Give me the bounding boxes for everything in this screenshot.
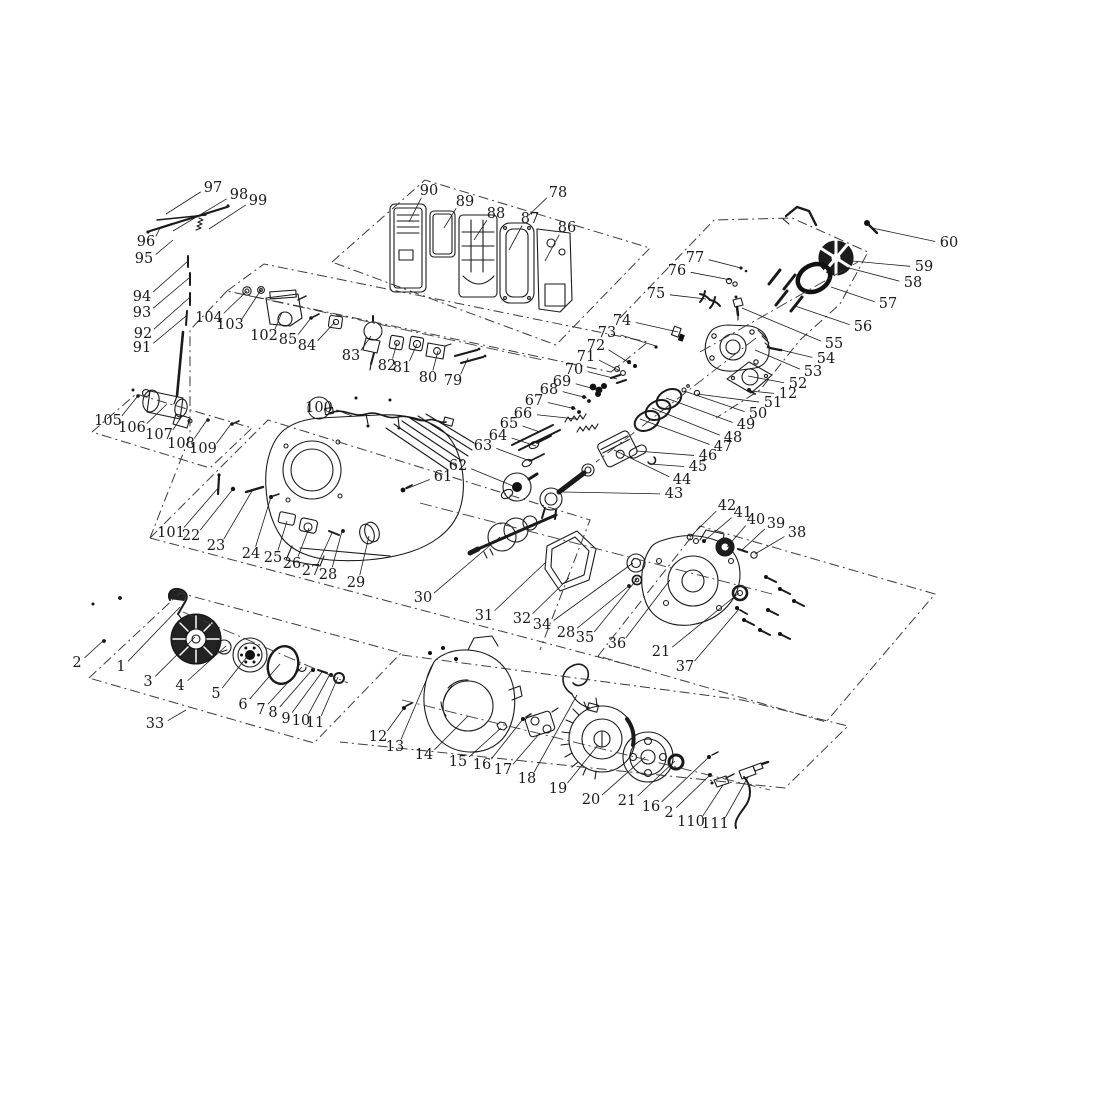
callout-leader: [849, 268, 899, 281]
callout-leader: [474, 220, 487, 240]
part-number-92: 92: [134, 326, 152, 342]
part-number-59: 59: [915, 259, 933, 275]
part-number-88: 88: [487, 206, 505, 222]
callout-leader: [298, 318, 311, 334]
part-number-90: 90: [420, 183, 438, 199]
part-number-17: 17: [494, 762, 512, 778]
callout-leader: [676, 775, 710, 808]
part-number-38: 38: [788, 525, 806, 541]
cover-group-boundary: [598, 526, 935, 722]
callout-leader: [567, 745, 598, 783]
part-number-1: 1: [116, 659, 125, 675]
callout-leader: [153, 261, 188, 292]
callout-leader: [554, 563, 633, 620]
part-number-74: 74: [613, 313, 631, 329]
callout-leader: [308, 674, 330, 714]
part-number-7: 7: [256, 702, 265, 718]
part-number-21: 21: [652, 644, 670, 660]
part-number-15: 15: [449, 754, 467, 770]
part-number-13: 13: [386, 739, 404, 755]
callout-leader: [563, 492, 660, 494]
part-number-6: 6: [238, 697, 247, 713]
part-number-32: 32: [513, 611, 531, 627]
part-number-39: 39: [767, 516, 785, 532]
callout-leader: [742, 308, 821, 341]
part-number-11: 11: [306, 715, 324, 731]
callout-leader: [168, 710, 186, 721]
callout-leader: [626, 580, 670, 638]
engine-exploded-diagram: 1234567891011121314151617181920211621101…: [0, 0, 1119, 1119]
callout-leader: [491, 719, 523, 759]
cylinder-head-assembly: [682, 207, 877, 396]
callout-leader: [666, 398, 733, 422]
callout-leader: [209, 205, 246, 229]
part-number-3: 3: [143, 674, 152, 690]
part-number-106: 106: [118, 420, 146, 436]
callout-leader: [852, 261, 910, 266]
part-number-33: 33: [146, 716, 164, 732]
callout-leader: [513, 733, 540, 764]
part-number-18: 18: [518, 771, 536, 787]
part-number-4: 4: [175, 678, 184, 694]
callout-leader: [224, 291, 247, 313]
part-number-94: 94: [133, 289, 151, 305]
callout-leader: [742, 529, 765, 550]
callout-leader: [224, 491, 252, 539]
callout-leader: [831, 287, 875, 302]
callout-leader: [495, 562, 546, 611]
callout-leader: [222, 653, 250, 688]
part-number-21: 21: [618, 793, 636, 809]
callout-leader: [278, 521, 287, 551]
part-number-96: 96: [137, 234, 155, 250]
part-number-35: 35: [576, 630, 594, 646]
part-number-5: 5: [211, 686, 220, 702]
part-number-19: 19: [549, 781, 567, 797]
callout-leader: [409, 198, 421, 222]
part-number-55: 55: [825, 336, 843, 352]
part-number-87: 87: [521, 211, 539, 227]
callout-leader: [434, 537, 500, 593]
callout-leader: [697, 394, 759, 402]
part-number-98: 98: [230, 187, 248, 203]
part-number-25: 25: [264, 550, 282, 566]
part-number-99: 99: [249, 193, 267, 209]
part-number-111: 111: [701, 816, 729, 832]
part-number-100: 100: [305, 400, 333, 416]
callout-leader: [548, 402, 576, 409]
callout-leader: [387, 708, 404, 731]
callout-leader: [166, 192, 201, 214]
part-number-16: 16: [473, 757, 491, 773]
part-number-23: 23: [207, 538, 225, 554]
flywheel-group-boundary: [340, 655, 848, 788]
callout-leader: [533, 578, 569, 614]
callout-leader: [409, 344, 417, 361]
part-number-76: 76: [668, 263, 686, 279]
part-number-86: 86: [558, 220, 576, 236]
callout-leader: [318, 322, 335, 341]
air-cleaner-group-boundary: [332, 180, 650, 345]
callout-leader: [332, 531, 342, 567]
callout-leader: [614, 450, 669, 477]
callout-leader: [695, 609, 739, 661]
air-cleaner-assembly: [390, 204, 572, 312]
callout-leader: [652, 408, 720, 435]
callout-leader: [496, 448, 530, 461]
part-number-41: 41: [734, 505, 752, 521]
part-number-60: 60: [940, 235, 958, 251]
part-number-58: 58: [904, 275, 922, 291]
part-number-28: 28: [557, 625, 575, 641]
part-number-24: 24: [242, 546, 260, 562]
callout-leader: [153, 278, 189, 308]
callout-leader: [670, 295, 706, 299]
part-number-56: 56: [854, 319, 872, 335]
part-number-85: 85: [279, 332, 297, 348]
callout-leader: [292, 672, 322, 713]
callout-leader: [393, 343, 397, 359]
part-number-82: 82: [378, 358, 396, 374]
recoil-starter-group-boundary: [89, 593, 401, 743]
callout-leader: [608, 350, 631, 364]
callout-leader: [194, 420, 207, 439]
callout-leader: [321, 677, 338, 716]
part-number-95: 95: [135, 251, 153, 267]
callout-leader: [256, 497, 271, 546]
callout-leader: [640, 419, 710, 444]
part-number-28: 28: [319, 567, 337, 583]
callout-leader: [690, 511, 716, 537]
part-number-83: 83: [342, 348, 360, 364]
part-number-34: 34: [533, 617, 551, 633]
callout-leader: [406, 479, 430, 489]
callout-leader: [577, 585, 630, 628]
callout-leader: [650, 464, 684, 467]
callout-leader: [537, 415, 576, 419]
part-number-101: 101: [157, 525, 185, 541]
part-number-104: 104: [195, 310, 223, 326]
part-number-80: 80: [419, 370, 437, 386]
callout-leader: [777, 349, 812, 357]
part-number-2: 2: [664, 805, 673, 821]
part-number-43: 43: [665, 486, 683, 502]
part-number-97: 97: [204, 180, 222, 196]
callout-leader: [872, 228, 935, 241]
part-number-91: 91: [133, 340, 151, 356]
callout-leader: [461, 358, 468, 374]
part-number-75: 75: [647, 286, 665, 302]
callout-labels: 1234567891011121314151617181920211621101…: [72, 180, 958, 832]
part-number-27: 27: [302, 563, 320, 579]
part-number-78: 78: [549, 185, 567, 201]
callout-leader: [636, 323, 678, 332]
part-number-77: 77: [686, 250, 704, 266]
diagram-page: 1234567891011121314151617181920211621101…: [0, 0, 1119, 1119]
part-number-89: 89: [456, 194, 474, 210]
part-number-16: 16: [642, 799, 660, 815]
callout-leader: [156, 240, 173, 255]
part-number-84: 84: [298, 338, 316, 354]
part-number-12: 12: [369, 729, 387, 745]
callout-leader: [588, 372, 617, 379]
callout-leader: [703, 785, 723, 816]
part-number-42: 42: [718, 498, 736, 514]
part-number-79: 79: [444, 373, 462, 389]
governor-rod-assembly: [146, 204, 229, 233]
callout-leader: [691, 272, 731, 280]
callout-leader: [684, 391, 745, 412]
callout-leader: [523, 426, 540, 432]
callout-leader: [709, 260, 741, 268]
part-number-29: 29: [347, 575, 365, 591]
callout-leader: [727, 525, 746, 547]
part-number-57: 57: [879, 296, 897, 312]
callout-leader: [200, 489, 233, 530]
callout-leader: [434, 716, 468, 750]
flywheel-axis: [402, 700, 770, 790]
callout-leader: [599, 360, 620, 371]
part-number-102: 102: [250, 328, 278, 344]
callout-leader: [173, 199, 227, 231]
part-number-8: 8: [268, 705, 277, 721]
part-number-2: 2: [72, 655, 81, 671]
cylinder-studs: [174, 256, 190, 404]
piston-assembly: [540, 385, 685, 519]
part-number-31: 31: [475, 608, 493, 624]
callout-leader: [298, 528, 309, 557]
callout-leader: [621, 335, 656, 346]
part-number-36: 36: [608, 636, 626, 652]
part-number-37: 37: [676, 659, 694, 675]
callout-leader: [275, 312, 282, 330]
carburetor-assembly: [243, 287, 487, 370]
part-number-93: 93: [133, 305, 151, 321]
callout-leaders: [85, 192, 936, 818]
callout-leader: [216, 424, 231, 444]
callout-leader: [85, 640, 104, 658]
carburetor-axis: [250, 296, 543, 360]
callout-leader: [672, 593, 739, 647]
callout-leader: [184, 487, 219, 527]
callout-leader: [563, 392, 587, 398]
part-number-9: 9: [281, 711, 290, 727]
part-number-14: 14: [415, 747, 433, 763]
part-number-62: 62: [449, 458, 467, 474]
part-number-26: 26: [283, 556, 301, 572]
cover-bolts: [742, 575, 804, 639]
callout-leader: [795, 306, 850, 325]
callout-leader: [755, 537, 784, 554]
part-number-109: 109: [189, 441, 217, 457]
callout-leader: [704, 518, 732, 541]
part-number-54: 54: [817, 351, 835, 367]
callout-leader: [638, 761, 675, 796]
callout-leader: [594, 579, 637, 632]
crankcase-block: [217, 414, 474, 566]
part-number-30: 30: [414, 590, 432, 606]
part-number-20: 20: [582, 792, 600, 808]
